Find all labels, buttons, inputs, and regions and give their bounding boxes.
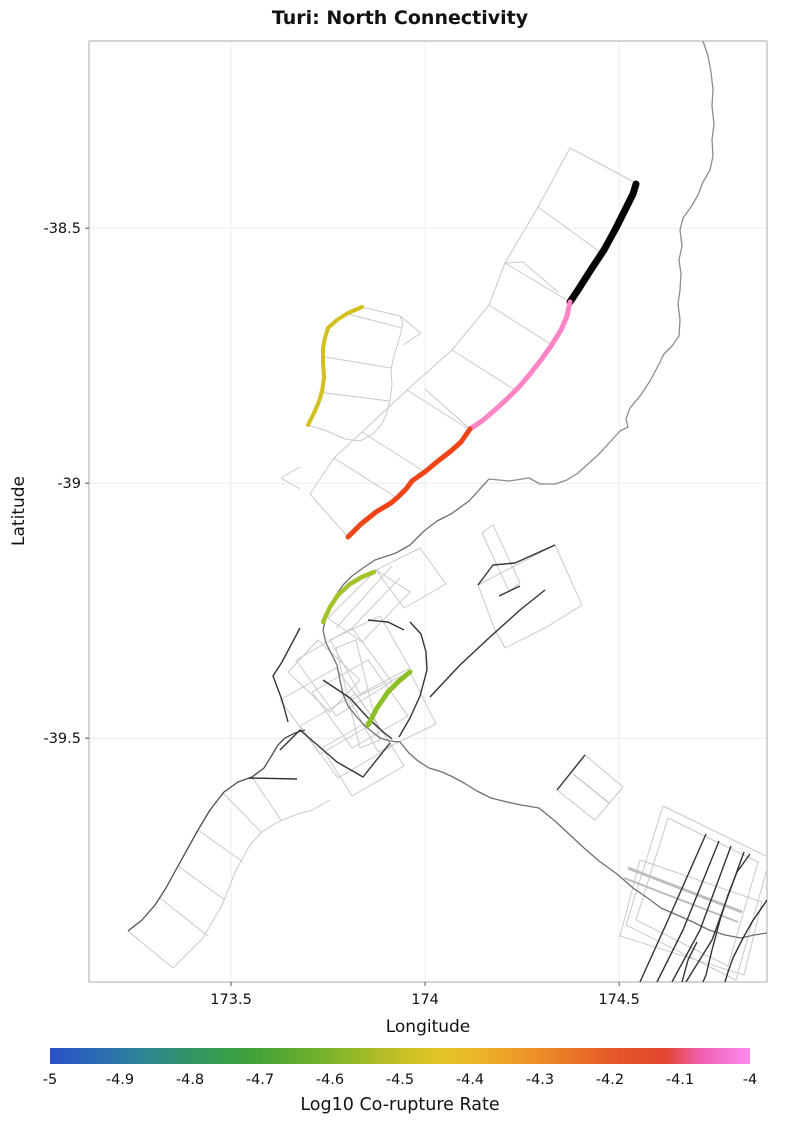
- fault-outline-path: [310, 148, 570, 494]
- chart-title: Turi: North Connectivity: [272, 7, 529, 29]
- coastline-layer: [128, 41, 767, 938]
- fault-outline-path: [160, 898, 208, 936]
- y-axis-label: Latitude: [9, 476, 29, 546]
- x-axis-label: Longitude: [386, 1017, 471, 1037]
- fault-trace-path: [499, 586, 520, 596]
- fault-outline-path: [452, 350, 515, 390]
- fault-outline-path: [489, 305, 552, 345]
- coastline-path: [128, 730, 305, 931]
- fault-outline-path: [570, 148, 636, 183]
- colorbar: [50, 1048, 750, 1064]
- gridlines-layer: [89, 41, 767, 982]
- fault-outline-path: [325, 357, 391, 368]
- fault-outline-path: [403, 333, 421, 345]
- axes-layer: 173.5174174.5-38.5-39-39.5: [43, 221, 639, 1008]
- fault-outline-path: [407, 390, 470, 430]
- fault-outline-path: [198, 830, 243, 862]
- x-tick-label: 174.5: [598, 992, 640, 1008]
- fault-trace-path: [725, 900, 767, 982]
- coastline-path: [323, 479, 767, 938]
- fault-outline-path: [478, 545, 582, 648]
- colorbar-tick-label: -5: [43, 1072, 57, 1088]
- colorbar-tick-label: -4.6: [316, 1072, 344, 1088]
- colorbar-tick-label: -4.7: [246, 1072, 274, 1088]
- fault-outline-path: [538, 207, 600, 252]
- rupture-north-source-section: [570, 184, 636, 302]
- fault-trace-path: [686, 852, 744, 982]
- rupture-segment-pink: [470, 302, 570, 429]
- fault-outline-path: [281, 467, 300, 478]
- fault-outline-path: [178, 866, 225, 900]
- fault-trace-path: [280, 730, 390, 777]
- fault-outline-path: [310, 494, 348, 537]
- colorbar-tick-label: -4.9: [106, 1072, 134, 1088]
- fault-outline-path: [362, 432, 425, 472]
- fault-outline-path: [318, 392, 389, 401]
- rupture-segment-yellow: [308, 307, 362, 425]
- fault-outline-path: [222, 792, 262, 833]
- fault-outline-path: [128, 931, 173, 968]
- fault-outline-path: [334, 458, 397, 498]
- colorbar-tick-label: -4: [743, 1072, 757, 1088]
- colorbar-tick-label: -4.1: [666, 1072, 694, 1088]
- y-tick-label: -39.5: [43, 731, 81, 747]
- colorbar-tick-label: -4.3: [526, 1072, 554, 1088]
- x-tick-label: 173.5: [210, 992, 252, 1008]
- rupture-segment-olive-2: [368, 672, 410, 725]
- fault-outline-path: [573, 774, 609, 803]
- colorbar-ticks: -5-4.9-4.8-4.7-4.6-4.5-4.4-4.3-4.2-4.1-4: [43, 1072, 757, 1088]
- fault-outline-path: [376, 548, 446, 608]
- colorbar-tick-label: -4.8: [176, 1072, 204, 1088]
- colorbar-label: Log10 Co-rupture Rate: [300, 1095, 499, 1115]
- figure: Turi: North Connectivity 173.5174174.5-3…: [0, 0, 800, 1130]
- fault-trace-path: [368, 620, 404, 630]
- fault-outline-path: [425, 389, 469, 428]
- colorbar-tick-label: -4.2: [596, 1072, 624, 1088]
- fault-outline-path: [482, 525, 520, 591]
- fault-outlines-layer: [128, 148, 770, 980]
- colorbar-tick-label: -4.5: [386, 1072, 414, 1088]
- fault-outline-path: [173, 800, 330, 968]
- fault-trace-path: [249, 778, 297, 779]
- colorbar-bar: [50, 1048, 750, 1064]
- fault-trace-path: [273, 628, 300, 722]
- y-tick-label: -39: [57, 476, 81, 492]
- fault-outline-path: [252, 777, 281, 820]
- y-tick-label: -38.5: [43, 221, 81, 237]
- fault-outline-path: [348, 314, 402, 328]
- fault-outline-path: [505, 263, 570, 302]
- plot-frame: [89, 41, 767, 982]
- fault-trace-path: [430, 590, 545, 697]
- fault-trace-path: [557, 755, 585, 790]
- x-tick-label: 174: [411, 992, 439, 1008]
- colorbar-tick-label: -4.4: [456, 1072, 484, 1088]
- fault-outline-path: [505, 262, 558, 292]
- map-plot: Turi: North Connectivity 173.5174174.5-3…: [0, 0, 800, 1130]
